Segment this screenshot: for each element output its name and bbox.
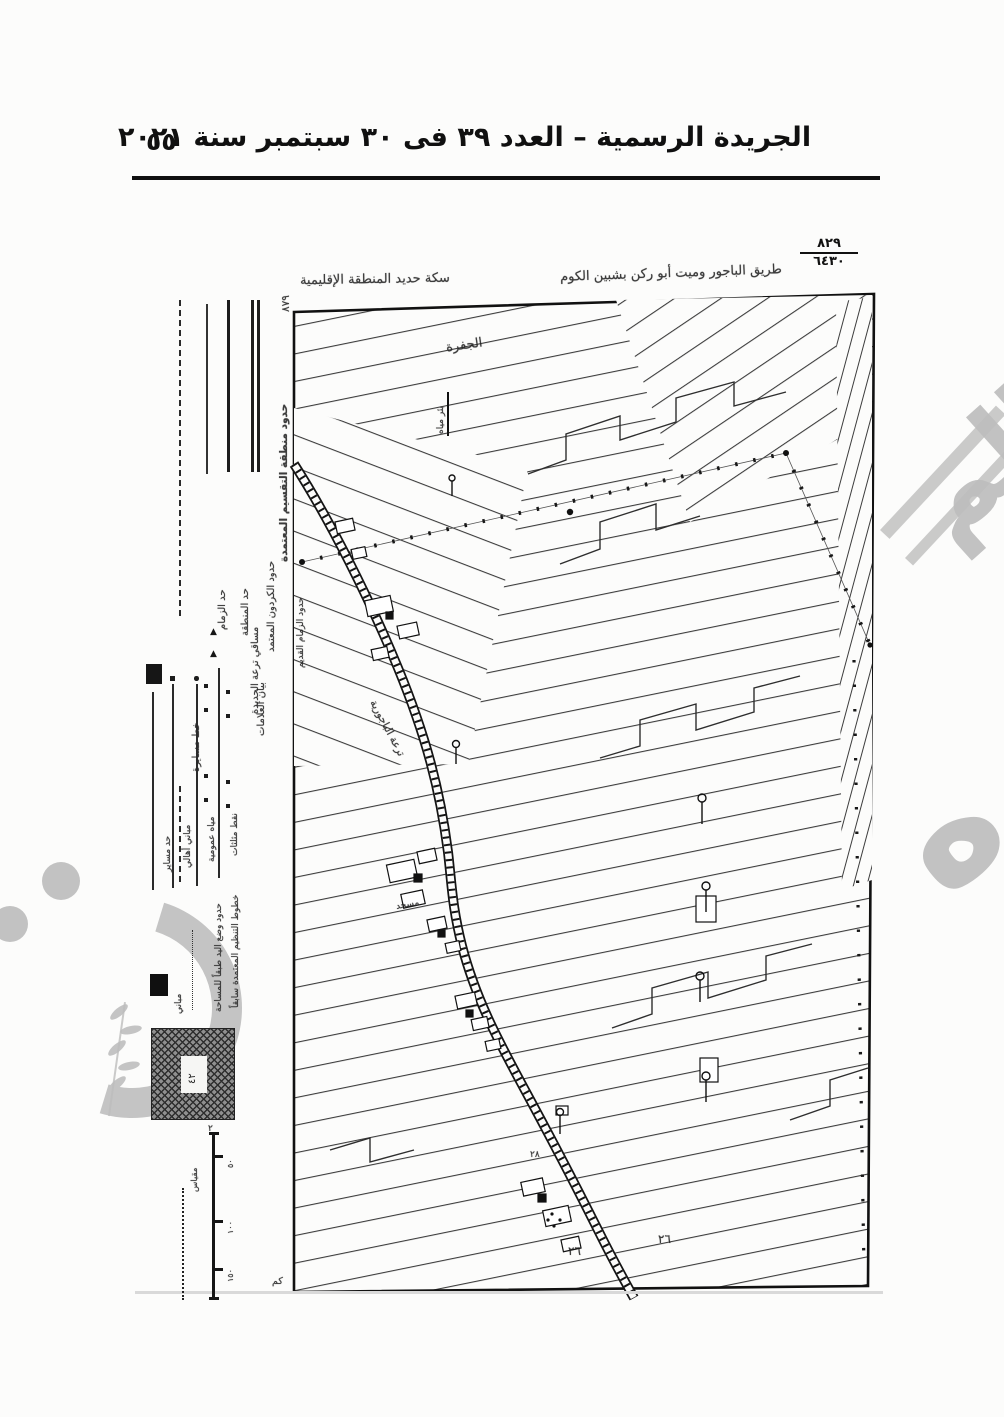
cadastral-map bbox=[0, 0, 1004, 1417]
scan-fold-line bbox=[135, 1291, 883, 1294]
field-block-rightband bbox=[836, 297, 872, 890]
gazette-page: صوره الم الجريدة الرسمية – العدد ٣٩ فى ٣… bbox=[0, 0, 1004, 1417]
